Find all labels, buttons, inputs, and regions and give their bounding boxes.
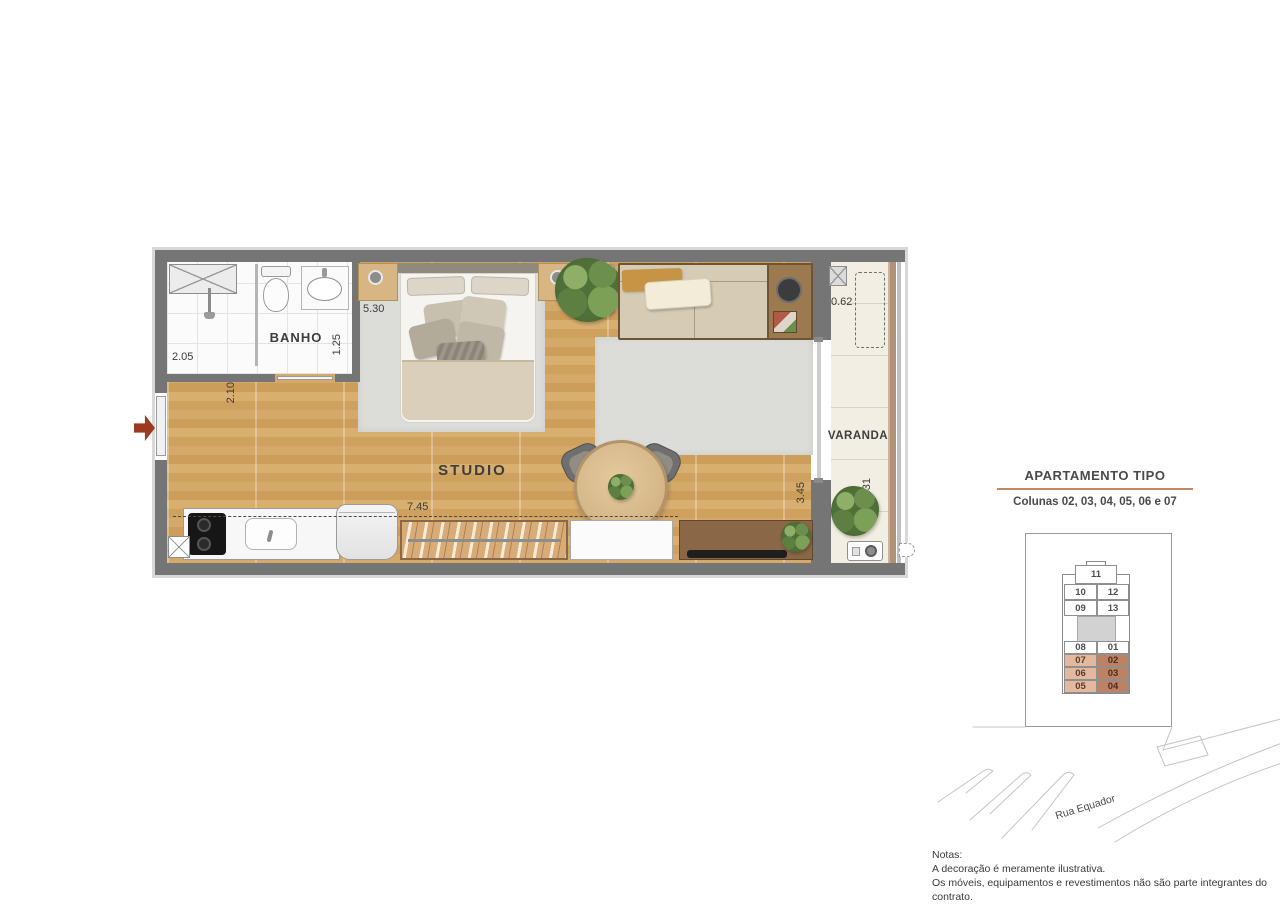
- road-curve: [1163, 718, 1280, 750]
- unit-03: 03: [1097, 667, 1129, 680]
- notes-block: Notas: A decoração é meramente ilustrati…: [932, 848, 1277, 905]
- studio-label: STUDIO: [430, 462, 515, 479]
- shower-head-tip: [204, 312, 215, 319]
- unit-11: 11: [1075, 565, 1117, 584]
- road-hook: [970, 773, 1031, 820]
- cabinet-projection-line: [173, 516, 678, 517]
- bathroom-wall-bottom-right: [335, 374, 360, 382]
- unit-07: 07: [1064, 654, 1097, 667]
- dim-varanda-depth: 0.62: [831, 296, 852, 308]
- bathroom-label: BANHO: [250, 330, 342, 345]
- bed-pillow: [471, 276, 530, 296]
- unit-04: 04: [1097, 680, 1129, 693]
- shower-head-icon: [208, 288, 211, 314]
- street-label: Rua Equador: [1054, 792, 1117, 822]
- sliding-door-jamb-top: [814, 337, 823, 342]
- washing-machine-lid-line: [339, 512, 395, 513]
- unit-01: 01: [1097, 641, 1129, 654]
- cooktop-burner: [197, 537, 211, 551]
- sliding-door-glass: [817, 340, 821, 480]
- closet-rod: [408, 539, 560, 542]
- bed-pillow: [407, 276, 466, 296]
- varanda-label: VARANDA: [827, 430, 889, 442]
- sink-basin: [307, 277, 342, 301]
- key-plan-box: 11 10 09 08 07 06 05 12 13 01 02 03 04: [1025, 533, 1172, 727]
- unit-09: 09: [1064, 600, 1097, 616]
- toilet-tank: [261, 266, 291, 277]
- dim-bath-width: 1.25: [331, 334, 343, 355]
- dim-closet: 7.45: [407, 501, 428, 513]
- bathroom-wall-bottom-left: [167, 374, 275, 382]
- road-curve: [1098, 742, 1280, 828]
- unit-13: 13: [1097, 600, 1129, 616]
- shaft-bottom-left: [168, 536, 190, 558]
- unit-05: 05: [1064, 680, 1097, 693]
- road-hook: [938, 769, 993, 802]
- title-underline: [997, 488, 1193, 490]
- unit-10: 10: [1064, 584, 1097, 600]
- apartment-type-title: APARTAMENTO TIPO: [995, 468, 1195, 483]
- apartment-type-block: APARTAMENTO TIPO Colunas 02, 03, 04, 05,…: [995, 468, 1195, 508]
- dim-bed-wall: 5.30: [363, 303, 384, 315]
- entry-arrow-icon: [134, 415, 155, 441]
- sofa-magazine-decor: [773, 311, 797, 333]
- closet: [400, 520, 568, 560]
- floor-plan: BANHO 2.05 1.25 2.10 5.30: [155, 250, 905, 575]
- road-curve: [1115, 762, 1280, 842]
- marketing-floorplan-page: BANHO 2.05 1.25 2.10 5.30: [0, 0, 1280, 905]
- unit-02: 02: [1097, 654, 1129, 667]
- columns-subtitle: Colunas 02, 03, 04, 05, 06 e 07: [995, 496, 1195, 508]
- living-rug: [595, 337, 813, 455]
- notes-line: A decoração é meramente ilustrativa.: [932, 862, 1277, 876]
- cooktop-burner: [197, 518, 211, 532]
- exterior-spigot: [899, 543, 915, 557]
- ac-condenser-outline: [855, 272, 885, 348]
- unit-06: 06: [1064, 667, 1097, 680]
- sofa-pillow: [644, 278, 712, 311]
- varanda-divider-wall-top: [811, 262, 831, 340]
- entry-door-leaf: [156, 396, 166, 456]
- unit-08: 08: [1064, 641, 1097, 654]
- condenser-fan: [865, 545, 877, 557]
- toilet-bowl: [263, 278, 289, 312]
- lamp-left-icon: [368, 270, 383, 285]
- bed-headboard: [398, 263, 538, 273]
- tower-core: [1077, 616, 1116, 642]
- wall-top: [155, 250, 905, 262]
- bathroom-door-leaf: [277, 376, 333, 380]
- tv-screen: [687, 550, 787, 558]
- varanda-railing: [888, 262, 896, 563]
- condenser-vent: [852, 547, 860, 556]
- sofa-tray-decor: [776, 277, 802, 303]
- wall-left-lower: [155, 460, 167, 575]
- condenser-unit: [847, 541, 883, 561]
- varanda-shaft: [829, 266, 847, 286]
- dim-living: 3.45: [795, 482, 807, 503]
- notes-line: Os móveis, equipamentos e revestimentos …: [932, 876, 1277, 904]
- wall-left-upper: [155, 250, 167, 393]
- sliding-door-jamb-bottom: [814, 478, 823, 483]
- bathroom-shaft: [169, 264, 237, 294]
- dim-entry: 2.10: [225, 382, 237, 403]
- wall-right-thin: [897, 262, 901, 563]
- notes-title: Notas:: [932, 848, 1277, 862]
- varanda-divider-wall-bottom: [811, 480, 831, 563]
- dim-shower: 2.05: [172, 351, 193, 363]
- ottoman-bench: [570, 520, 673, 560]
- bed-blanket: [402, 360, 534, 420]
- site-sketch: Rua Equador: [930, 710, 1280, 865]
- sink-faucet-icon: [322, 268, 327, 277]
- unit-12: 12: [1097, 584, 1129, 600]
- shower-divider: [255, 264, 258, 366]
- site-line: [1163, 727, 1172, 750]
- wall-bottom: [155, 563, 905, 575]
